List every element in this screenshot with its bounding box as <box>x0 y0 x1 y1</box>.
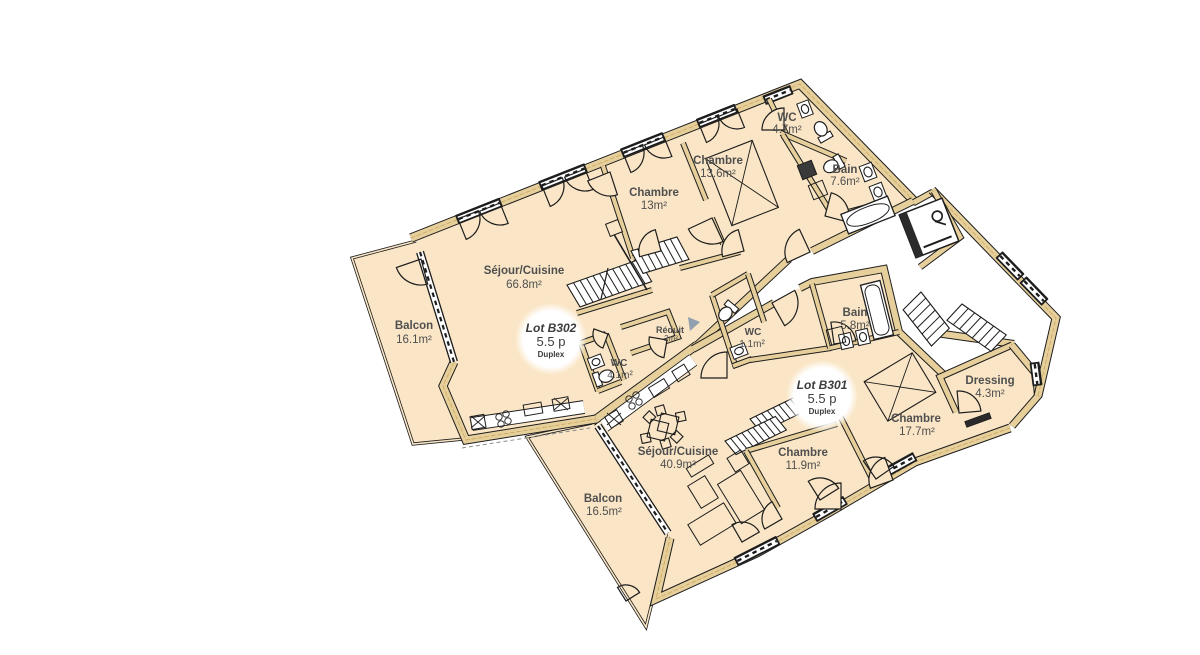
svg-text:Séjour/Cuisine: Séjour/Cuisine <box>484 265 565 277</box>
svg-text:WC: WC <box>777 112 796 124</box>
svg-text:Dressing: Dressing <box>965 375 1014 387</box>
svg-text:Chambre: Chambre <box>629 187 679 199</box>
svg-text:13.6m²: 13.6m² <box>700 168 736 180</box>
svg-text:11.9m²: 11.9m² <box>786 460 821 472</box>
svg-text:13m²: 13m² <box>641 200 667 212</box>
svg-text:WC: WC <box>611 358 628 369</box>
svg-text:Balcon: Balcon <box>584 493 622 505</box>
svg-text:Bain: Bain <box>843 307 868 319</box>
svg-text:16.1m²: 16.1m² <box>396 334 432 346</box>
svg-text:5.5 p: 5.5 p <box>808 391 837 406</box>
svg-text:Chambre: Chambre <box>891 413 941 425</box>
svg-text:Duplex: Duplex <box>809 407 836 416</box>
svg-text:2m²: 2m² <box>664 334 678 343</box>
svg-text:4.7m²: 4.7m² <box>772 124 802 136</box>
svg-text:Chambre: Chambre <box>778 447 828 459</box>
svg-text:Chambre: Chambre <box>693 155 743 167</box>
svg-text:Séjour/Cuisine: Séjour/Cuisine <box>638 446 719 458</box>
svg-text:1.1m²: 1.1m² <box>739 339 765 350</box>
svg-text:Duplex: Duplex <box>538 350 565 359</box>
svg-text:16.5m²: 16.5m² <box>586 506 622 518</box>
svg-text:Bain: Bain <box>833 164 858 176</box>
svg-text:4.1m²: 4.1m² <box>607 370 633 381</box>
svg-text:17.7m²: 17.7m² <box>899 426 935 438</box>
svg-text:66.8m²: 66.8m² <box>506 279 542 291</box>
svg-text:Lot B301: Lot B301 <box>797 378 848 392</box>
svg-text:7.6m²: 7.6m² <box>830 176 860 188</box>
svg-text:5.8m²: 5.8m² <box>840 320 870 332</box>
svg-text:5.5 p: 5.5 p <box>537 334 566 349</box>
svg-text:4.3m²: 4.3m² <box>975 388 1005 400</box>
svg-text:Lot B302: Lot B302 <box>526 321 577 335</box>
svg-text:Balcon: Balcon <box>395 320 433 332</box>
svg-text:WC: WC <box>745 327 762 338</box>
svg-text:40.9m²: 40.9m² <box>660 459 696 471</box>
